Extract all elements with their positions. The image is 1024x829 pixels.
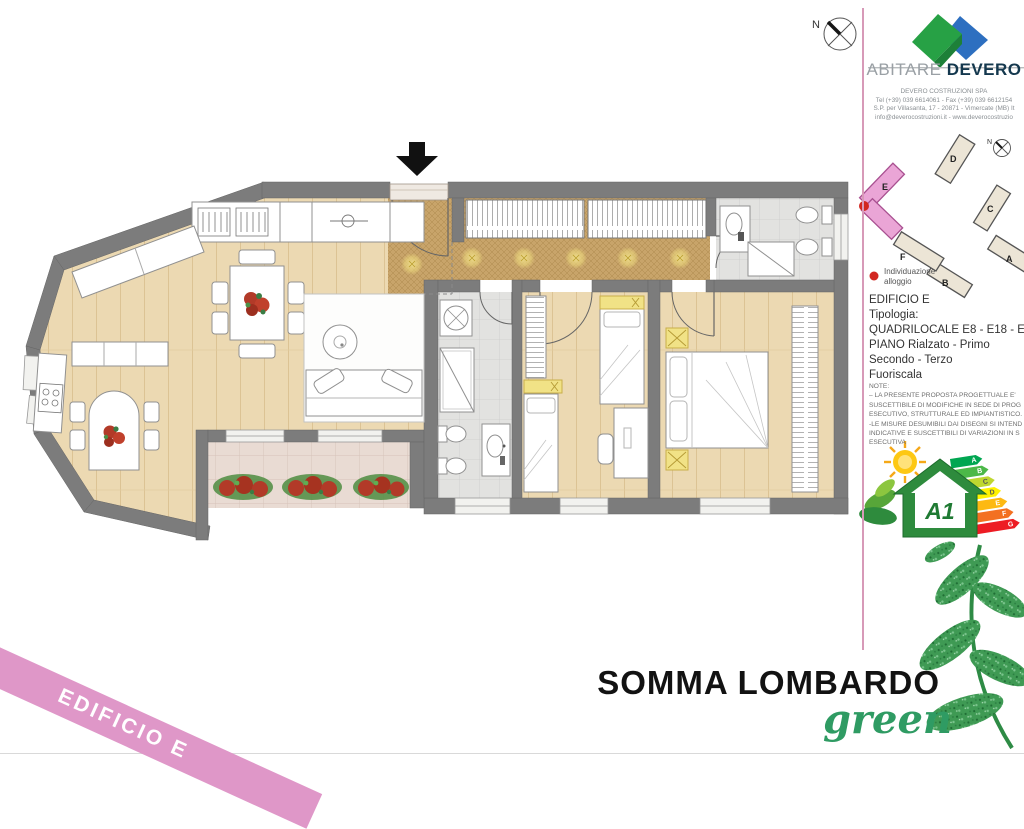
- unit-info: EDIFICIO E Tipologia: QUADRILOCALE E8 - …: [869, 293, 1024, 383]
- eco-leaves-icon: [858, 476, 899, 527]
- building-label-A: A: [1006, 254, 1013, 264]
- energy-badge: A B C D E F G: [858, 441, 1020, 537]
- company-phone: Tel (+39) 039 6614061 - Fax (+39) 039 66…: [864, 97, 1024, 106]
- twin-wardrobe: [526, 296, 546, 378]
- plan-compass-icon: N: [812, 18, 856, 50]
- balcony-planters: [213, 474, 409, 500]
- plan-north-label: N: [812, 19, 820, 31]
- sofa: [306, 367, 422, 416]
- energy-class-label: A1: [924, 498, 954, 524]
- unit-marker-dot: [859, 201, 869, 211]
- floorplan: N: [23, 18, 856, 540]
- building-label-D: D: [950, 154, 957, 164]
- building-label-F: F: [900, 252, 906, 262]
- building-E-highlighted: [860, 163, 905, 239]
- bidet-icon: [438, 458, 466, 474]
- shower: [440, 348, 474, 412]
- sitemap-compass-icon: N: [987, 139, 1011, 157]
- master-wardrobe: [792, 306, 818, 492]
- unit-tipologia-label: Tipologia:: [869, 308, 1024, 323]
- unit-floors-1: PIANO Rialzato - Primo: [869, 338, 1024, 353]
- svg-text:A: A: [971, 457, 977, 465]
- single-bed-1: [524, 394, 558, 492]
- building-label-B: B: [942, 278, 949, 288]
- nightstand-2: [666, 450, 688, 470]
- shelf-light: [524, 380, 562, 393]
- company-name: DEVERO COSTRUZIONI SPA: [864, 88, 1024, 97]
- project-subtitle: green: [700, 696, 952, 743]
- entrance-arrow-icon: [396, 142, 438, 176]
- bidet-icon-2: [796, 238, 832, 256]
- double-bed: [666, 352, 768, 448]
- toilet-icon-2: [796, 206, 832, 224]
- svg-text:D: D: [989, 489, 995, 497]
- brand-word-abitare: ABITARE: [866, 60, 941, 79]
- building-label-C: C: [987, 204, 994, 214]
- legend-dot: [870, 272, 879, 281]
- nightstand-1: [666, 328, 688, 348]
- single-bed-2: [600, 296, 644, 404]
- svg-text:B: B: [977, 468, 983, 476]
- notes-block: NOTE: – LA PRESENTE PROPOSTA PROGETTUALE…: [869, 382, 1022, 448]
- svg-text:C: C: [982, 478, 988, 486]
- building-label-E: E: [882, 182, 888, 192]
- company-info: DEVERO COSTRUZIONI SPA Tel (+39) 039 661…: [864, 88, 1024, 122]
- unit-building: EDIFICIO E: [869, 293, 1024, 308]
- coffee-table: [323, 325, 357, 359]
- shower-2: [748, 242, 794, 276]
- company-address: S.P. per Villasanta, 17 - 20871 - Vimerc…: [864, 105, 1024, 114]
- unit-floors-2: Secondo - Terzo: [869, 353, 1024, 368]
- sitemap-north-label: N: [987, 139, 992, 146]
- living-area: [304, 294, 424, 422]
- company-web: info@deverocostruzioni.it - www.deveroco…: [864, 114, 1024, 123]
- toilet-icon: [438, 426, 466, 442]
- entrance-threshold: [390, 184, 448, 200]
- vanity-sink-2: [720, 206, 750, 252]
- desk-chair: [598, 434, 613, 464]
- washing-machine-icon: [440, 300, 472, 336]
- vanity-sink: [482, 424, 510, 476]
- brand-wordmark: ABITARE DEVERO: [864, 60, 1024, 80]
- unit-marker-legend: Individuazione alloggio: [884, 267, 935, 287]
- unit-scale: Fuoriscala: [869, 368, 1024, 383]
- brand-word-devero: DEVERO: [947, 60, 1022, 79]
- unit-tipologia-value: QUADRILOCALE E8 - E18 - E30 -: [869, 323, 1024, 338]
